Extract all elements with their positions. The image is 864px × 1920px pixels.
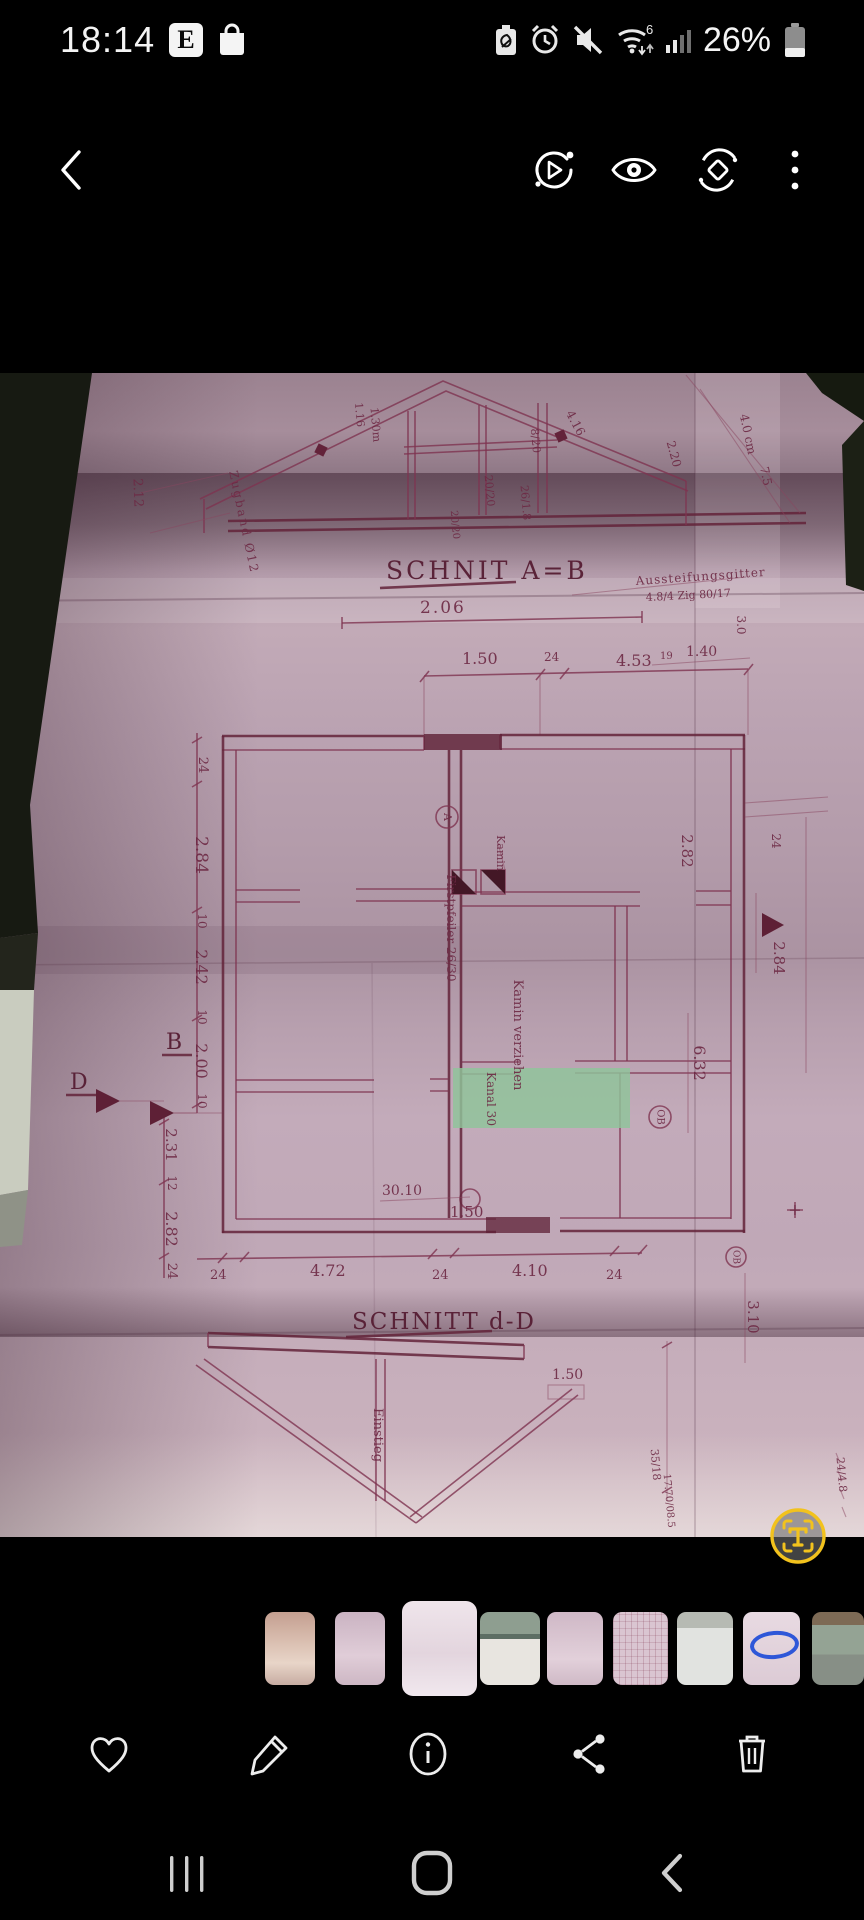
svg-text:24: 24 [195,757,210,774]
thumbnail-1[interactable] [265,1612,315,1685]
svg-text:2.42: 2.42 [192,949,211,985]
status-left: 18:14 E [0,19,247,61]
svg-text:1.40: 1.40 [686,644,717,660]
blue-oval-mark [749,1629,800,1662]
thumbnail-8[interactable] [743,1612,800,1685]
svg-text:4.10: 4.10 [512,1261,548,1280]
svg-text:6: 6 [646,22,653,37]
thumbnail-9[interactable] [812,1612,864,1685]
back-icon[interactable] [52,146,92,194]
svg-text:3.0: 3.0 [734,615,748,634]
svg-text:30.10: 30.10 [382,1183,422,1199]
svg-text:10: 10 [195,913,209,928]
wifi-icon: 6 [615,22,655,58]
thumbnail-5[interactable] [547,1612,603,1685]
svg-text:Firstpfeiler 26/30: Firstpfeiler 26/30 [444,874,458,981]
thumbnail-6[interactable] [613,1612,668,1685]
svg-text:24: 24 [544,650,560,664]
blueprint-svg[interactable]: SCHNIT A=B SCHNITT d-D 2.06 1.50 24 4.53… [0,373,864,1537]
mute-icon [572,23,604,57]
svg-text:2.00: 2.00 [192,1043,211,1079]
svg-text:24: 24 [164,1263,179,1280]
thumbnail-4[interactable] [480,1612,540,1685]
svg-text:12: 12 [165,1175,179,1190]
svg-text:Einstieg: Einstieg [370,1408,385,1462]
svg-text:2.31: 2.31 [162,1128,180,1161]
svg-text:SCHNITT d-D: SCHNITT d-D [352,1309,536,1335]
svg-text:OB: OB [731,1250,741,1264]
delete-icon[interactable] [728,1730,776,1778]
favorite-icon[interactable] [85,1730,133,1778]
svg-text:B: B [166,1030,182,1055]
svg-text:1.50: 1.50 [450,1203,483,1221]
svg-text:Kamin: Kamin [494,835,507,871]
status-right: 6 26% [494,21,864,60]
svg-text:24: 24 [210,1268,227,1283]
thumbnail-7[interactable] [677,1612,733,1685]
svg-text:20/20: 20/20 [482,474,498,507]
action-bar [0,1730,864,1800]
svg-text:2.82: 2.82 [162,1211,181,1247]
text-scan-button[interactable] [768,1506,828,1566]
svg-text:1.16: 1.16 [352,402,367,428]
status-bar: 18:14 E [0,0,864,80]
svg-text:8/20: 8/20 [528,428,543,454]
share-icon[interactable] [567,1730,615,1778]
thumbnail-3-selected[interactable] [402,1601,477,1696]
edit-icon[interactable] [245,1730,293,1778]
navigation-bar [0,1842,864,1920]
svg-text:4.53: 4.53 [616,651,652,670]
more-icon[interactable] [789,146,801,194]
battery-saver-icon [494,23,518,57]
rotate-icon[interactable] [694,146,742,194]
home-icon[interactable] [411,1850,453,1896]
svg-text:19: 19 [660,651,673,662]
alarm-icon [529,23,561,57]
info-icon[interactable] [404,1730,452,1778]
back-nav-icon[interactable] [656,1852,688,1894]
svg-text:4.72: 4.72 [310,1261,346,1280]
svg-text:SCHNIT A=B: SCHNIT A=B [386,556,588,585]
svg-text:24: 24 [769,833,783,849]
thumbnail-2[interactable] [335,1612,385,1685]
battery-icon [782,21,808,59]
svg-text:24: 24 [432,1268,449,1283]
svg-text:Kanal 30: Kanal 30 [484,1072,498,1126]
svg-text:D: D [70,1070,88,1095]
battery-percent: 26% [703,21,771,60]
photo-view[interactable]: SCHNIT A=B SCHNITT d-D 2.06 1.50 24 4.53… [0,373,864,1537]
clock: 18:14 [60,19,155,61]
svg-text:2.12: 2.12 [129,478,145,507]
svg-text:A: A [441,812,454,822]
signal-icon [666,23,692,57]
green-highlight [453,1068,630,1128]
svg-text:2.06: 2.06 [420,598,466,618]
svg-text:1.50: 1.50 [462,649,498,668]
gallery-photo-viewer: 18:14 E [0,0,864,1920]
svg-text:6.32: 6.32 [690,1045,709,1081]
svg-text:OB: OB [655,1109,666,1125]
svg-text:2.84: 2.84 [770,941,788,974]
text-scan-icon [768,1506,828,1566]
svg-text:10: 10 [195,1093,209,1108]
eye-icon[interactable] [608,146,660,194]
svg-text:24: 24 [606,1268,623,1283]
shopping-bag-icon [217,23,247,57]
recents-icon[interactable] [168,1854,206,1894]
svg-text:3.10: 3.10 [744,1300,762,1333]
svg-text:2.82: 2.82 [678,834,696,867]
e-notification-icon: E [169,23,203,57]
svg-text:10: 10 [195,1009,209,1024]
thumbnail-strip [0,1601,864,1697]
viewer-toolbar [0,118,864,228]
svg-text:+: + [788,1200,801,1219]
svg-text:2.84: 2.84 [191,836,211,874]
svg-text:1.50: 1.50 [552,1367,583,1383]
svg-text:Kamin verziehen: Kamin verziehen [510,980,525,1091]
motion-photo-icon[interactable] [529,146,577,194]
